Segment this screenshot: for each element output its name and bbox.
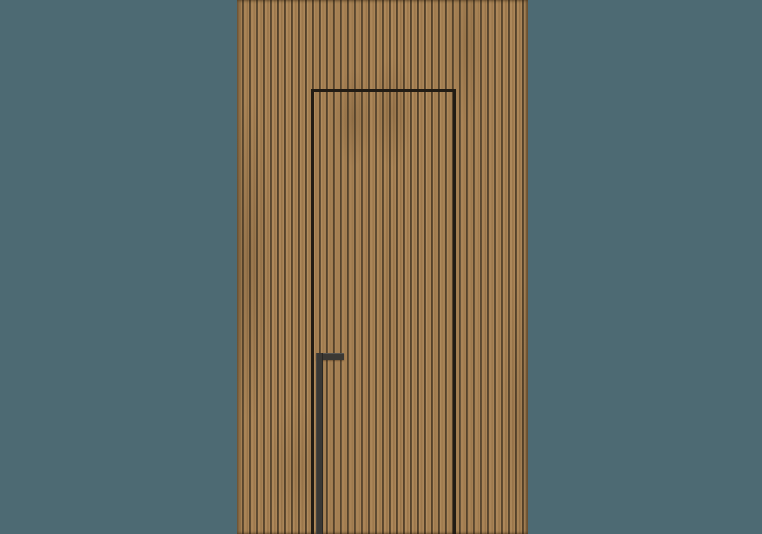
scene-background: Rendered product image of a concealed fl… [0, 0, 762, 534]
wood-slat-panel [237, 0, 528, 534]
door-handle-grip-bar [316, 353, 323, 534]
concealed-door-outline [311, 89, 456, 534]
